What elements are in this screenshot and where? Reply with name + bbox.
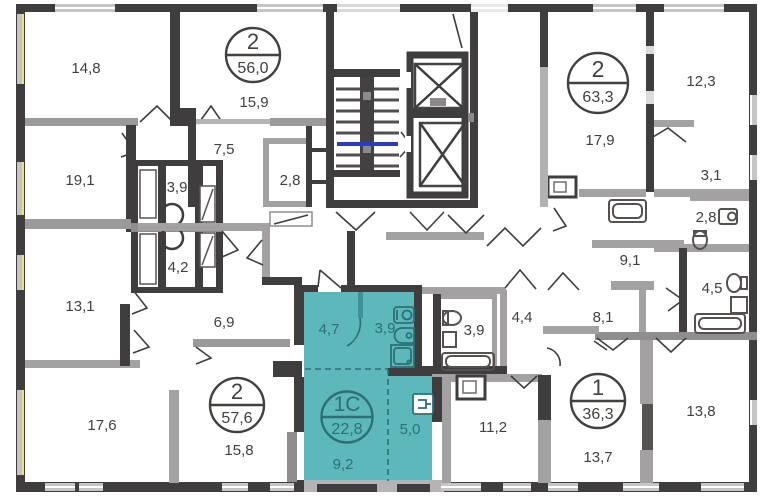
svg-text:12,3: 12,3 bbox=[686, 73, 715, 90]
svg-text:57,6: 57,6 bbox=[221, 410, 252, 427]
svg-text:4,5: 4,5 bbox=[702, 280, 723, 297]
svg-text:15,8: 15,8 bbox=[224, 442, 253, 459]
svg-text:4,2: 4,2 bbox=[168, 259, 189, 276]
svg-text:22,8: 22,8 bbox=[331, 421, 362, 438]
svg-text:2: 2 bbox=[592, 56, 605, 82]
svg-text:5,0: 5,0 bbox=[400, 421, 421, 438]
svg-text:13,8: 13,8 bbox=[686, 403, 715, 420]
svg-text:4,4: 4,4 bbox=[512, 309, 533, 326]
svg-text:4,7: 4,7 bbox=[319, 321, 340, 338]
svg-text:2: 2 bbox=[247, 29, 259, 54]
svg-text:17,9: 17,9 bbox=[585, 132, 614, 149]
svg-text:19,1: 19,1 bbox=[65, 172, 94, 189]
svg-text:1C: 1C bbox=[334, 393, 361, 416]
svg-text:3,9: 3,9 bbox=[464, 322, 485, 339]
svg-text:3,9: 3,9 bbox=[167, 179, 188, 196]
svg-text:3,1: 3,1 bbox=[701, 167, 722, 184]
svg-text:7,5: 7,5 bbox=[214, 141, 235, 158]
svg-text:36,3: 36,3 bbox=[582, 406, 613, 423]
svg-text:6,9: 6,9 bbox=[214, 314, 235, 331]
svg-text:15,9: 15,9 bbox=[239, 94, 268, 111]
svg-text:8,1: 8,1 bbox=[593, 309, 614, 326]
svg-text:2: 2 bbox=[231, 379, 243, 404]
svg-text:9,1: 9,1 bbox=[620, 252, 641, 269]
svg-text:2,8: 2,8 bbox=[280, 172, 301, 189]
svg-text:9,2: 9,2 bbox=[333, 456, 354, 473]
svg-text:63,3: 63,3 bbox=[582, 89, 613, 106]
svg-text:17,6: 17,6 bbox=[87, 417, 116, 434]
svg-text:13,7: 13,7 bbox=[583, 449, 612, 466]
svg-text:3,9: 3,9 bbox=[375, 320, 396, 337]
svg-text:1: 1 bbox=[592, 375, 604, 400]
svg-text:14,8: 14,8 bbox=[71, 60, 100, 77]
svg-text:56,0: 56,0 bbox=[237, 60, 268, 77]
svg-text:13,1: 13,1 bbox=[65, 298, 94, 315]
svg-text:11,2: 11,2 bbox=[479, 419, 507, 436]
svg-text:2,8: 2,8 bbox=[696, 209, 717, 226]
